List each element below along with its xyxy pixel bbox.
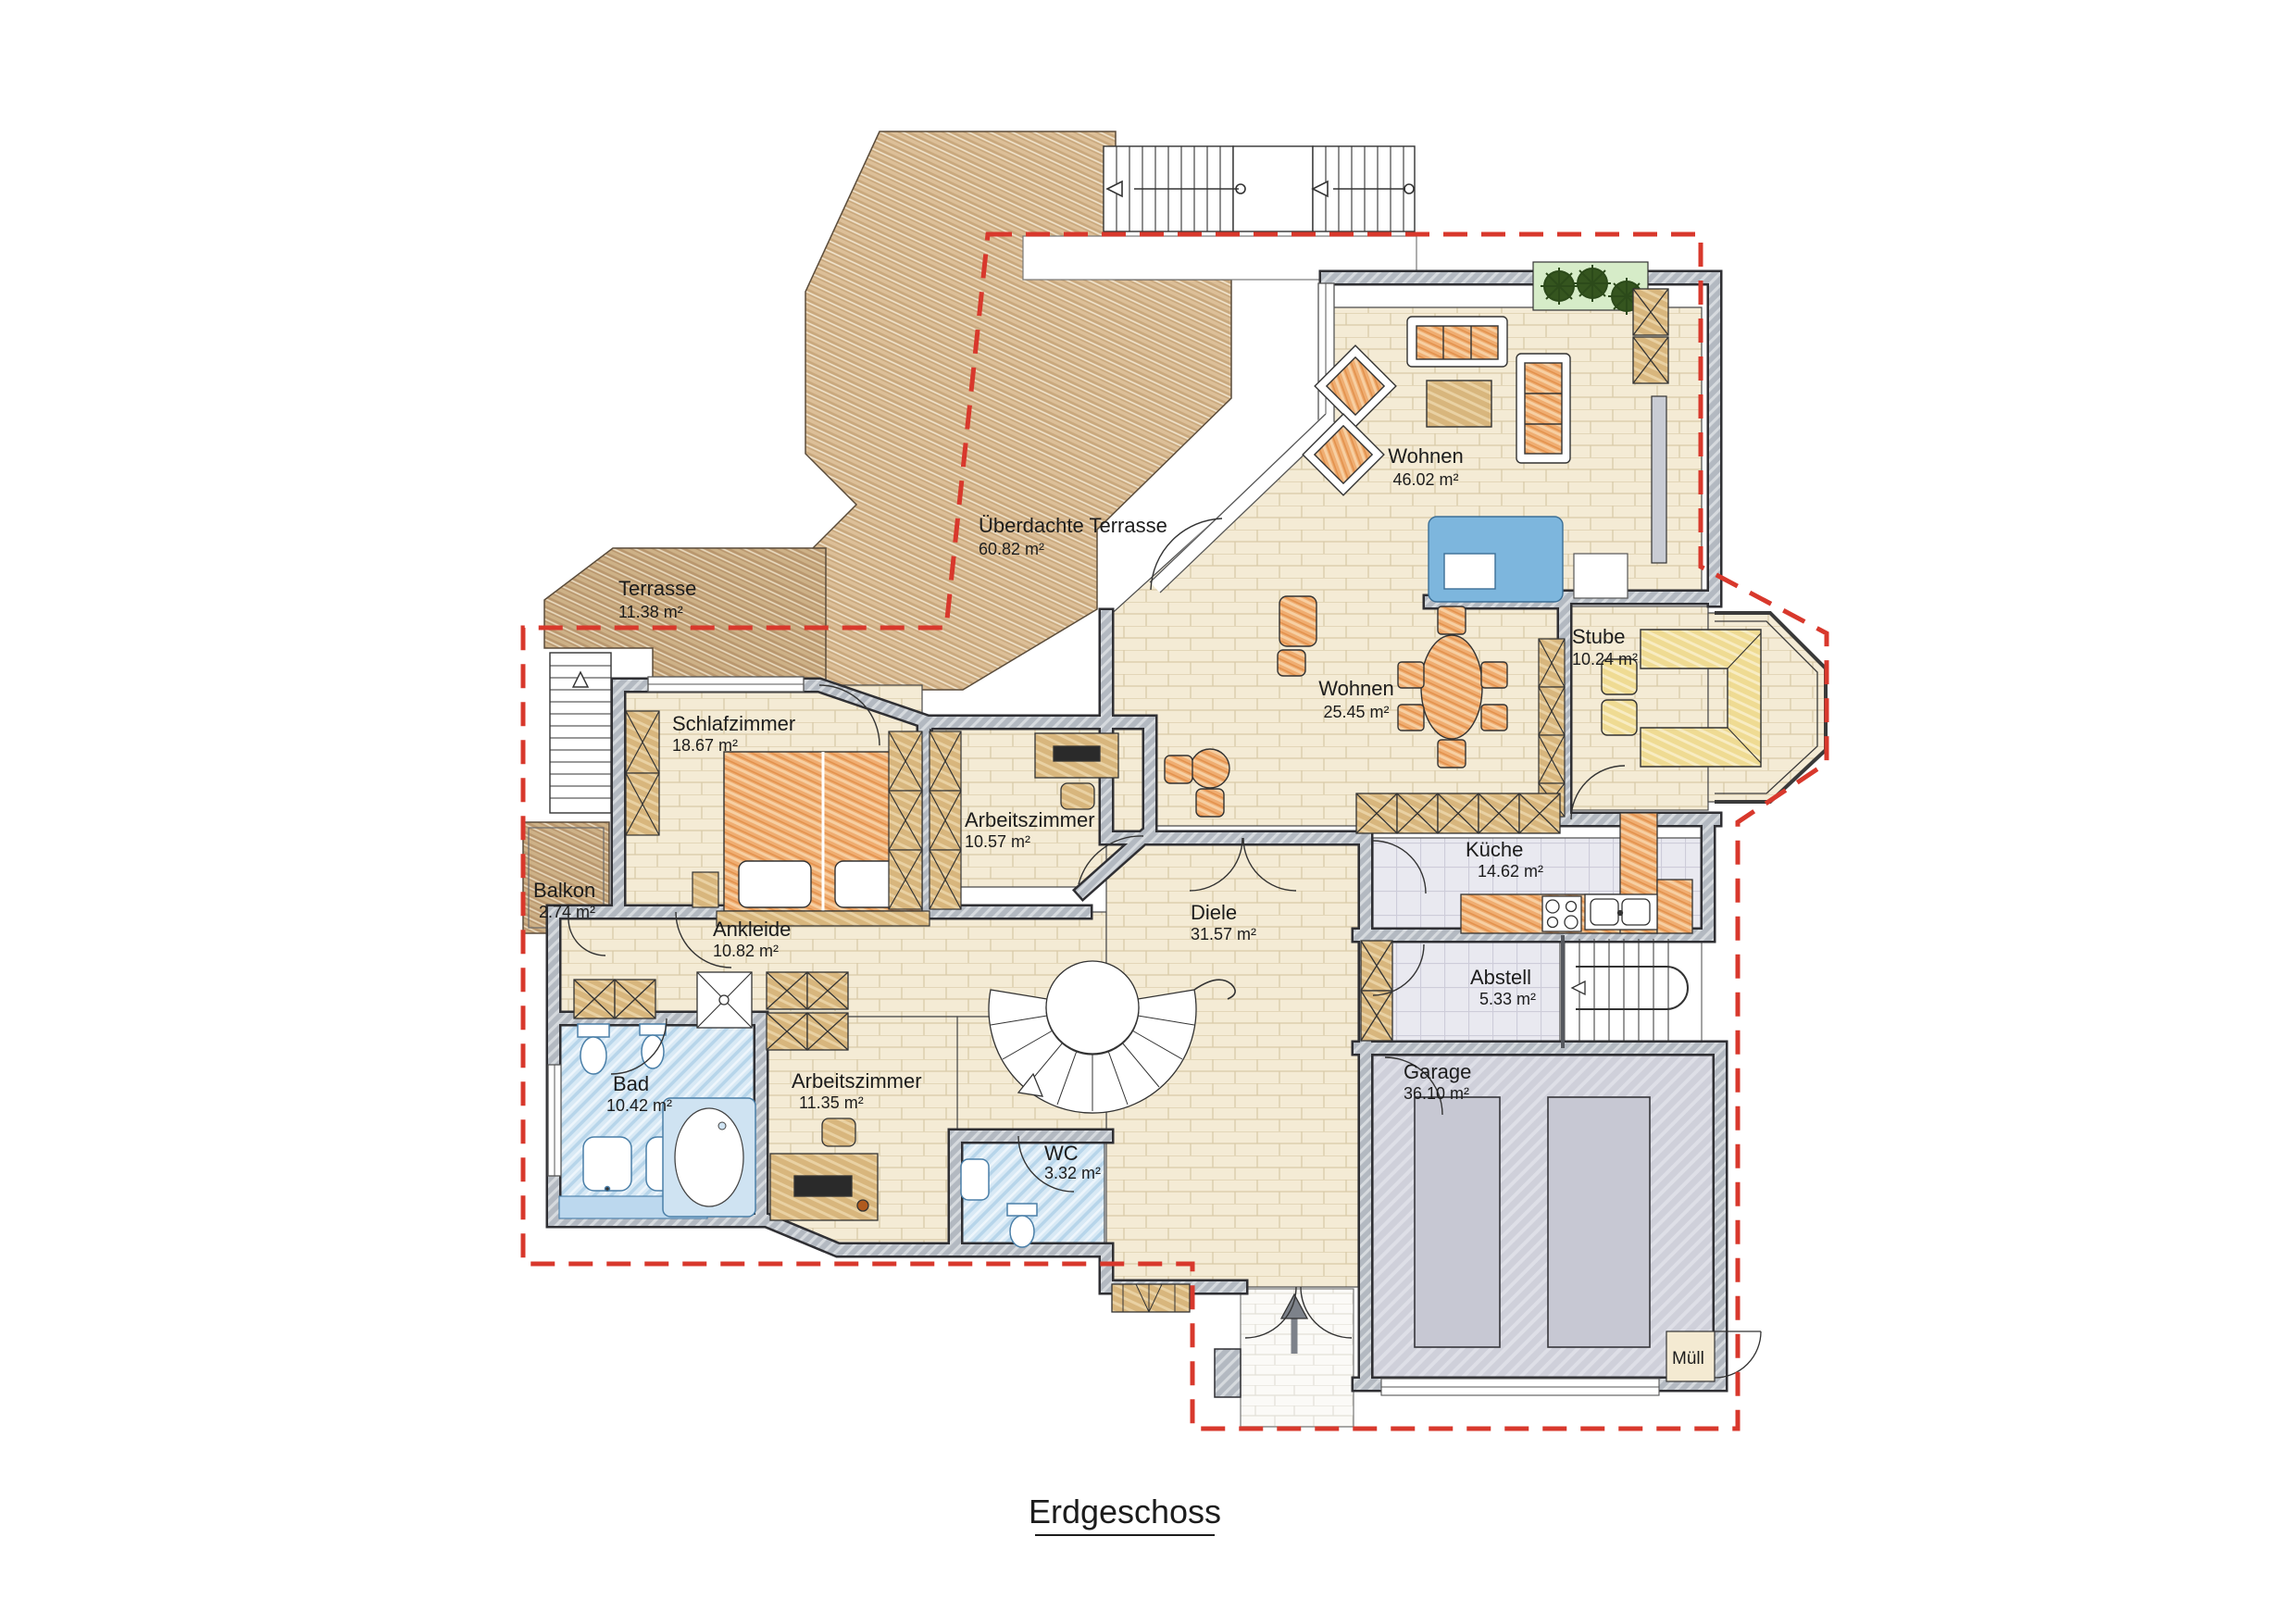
label-ankleide: Ankleide <box>713 918 791 941</box>
area-kueche: 14.62 m² <box>1478 862 1543 881</box>
window-bad-west <box>548 1065 561 1176</box>
label-diele: Diele <box>1191 901 1237 924</box>
bidet <box>640 1024 666 1068</box>
area-ankleide: 10.82 m² <box>713 942 779 960</box>
sink-1 <box>583 1137 631 1191</box>
double-sink <box>1585 894 1657 930</box>
exterior-stairs-left <box>550 653 611 813</box>
title-text: Erdgeschoss <box>1029 1493 1221 1530</box>
hall-stool-2 <box>1196 789 1224 817</box>
label-arbeitszimmer-sued: Arbeitszimmer <box>792 1069 922 1093</box>
label-wohnen-ess: Wohnen <box>1318 677 1394 700</box>
pillow-left <box>739 861 811 907</box>
shower <box>697 972 752 1028</box>
wardrobe-west <box>626 711 659 835</box>
area-wohnen-ess: 25.45 m² <box>1323 703 1389 721</box>
area-schlafzimmer: 18.67 m² <box>672 736 738 755</box>
sofa-two-seat <box>1516 354 1570 463</box>
wc-toilet <box>1010 1216 1034 1247</box>
stove-niche <box>1574 554 1628 598</box>
tiled-stove <box>1429 517 1563 602</box>
kitchen-top-cabinets <box>1356 793 1560 833</box>
bedside-table <box>693 872 718 907</box>
label-kueche: Küche <box>1466 838 1523 861</box>
label-wc: WC <box>1044 1142 1079 1165</box>
wc-sink <box>961 1159 989 1200</box>
coffee-table <box>1427 381 1491 427</box>
label-arbeitszimmer-ost: Arbeitszimmer <box>965 808 1095 831</box>
tv-board <box>1652 396 1666 563</box>
desk-chair-east <box>1061 783 1094 809</box>
label-schlafzimmer: Schlafzimmer <box>672 712 795 735</box>
label-garage: Garage <box>1404 1060 1471 1083</box>
window-schlafzimmer-north <box>648 677 804 692</box>
area-terrasse: 11.38 m² <box>618 603 683 621</box>
entrance-wall-stub <box>1215 1349 1241 1397</box>
toilet-bad <box>578 1024 609 1074</box>
plan-title: Erdgeschoss <box>1029 1493 1221 1535</box>
area-balkon: 2.74 m² <box>539 903 595 921</box>
dining-stube-cabinets <box>1539 639 1565 817</box>
ottoman-sw <box>1278 650 1305 676</box>
label-balkon: Balkon <box>533 879 595 902</box>
floor-plan-drawing: Überdachte Terrasse 60.82 m² Terrasse 11… <box>0 0 2296 1624</box>
abstell-cabinet <box>1361 941 1392 1041</box>
parking-space-2 <box>1548 1097 1650 1347</box>
dining-table <box>1421 635 1482 739</box>
hall-round-table <box>1191 749 1229 788</box>
label-terrasse: Terrasse <box>618 577 696 600</box>
desk-chair-south <box>822 1118 855 1146</box>
area-diele: 31.57 m² <box>1191 925 1256 943</box>
area-bad: 10.42 m² <box>606 1096 672 1115</box>
area-wc: 3.32 m² <box>1044 1164 1101 1182</box>
area-abstell: 5.33 m² <box>1479 990 1536 1008</box>
label-bad: Bad <box>613 1072 649 1095</box>
bathtub <box>663 1098 755 1217</box>
area-stube: 10.24 m² <box>1572 650 1638 668</box>
label-ueberdachte-terrasse: Überdachte Terrasse <box>979 514 1167 537</box>
area-ueberdachte-terrasse: 60.82 m² <box>979 540 1044 558</box>
exterior-stairs-top <box>1104 146 1415 231</box>
area-wohnen-gross: 46.02 m² <box>1392 470 1458 489</box>
armchair-sw <box>1279 596 1316 646</box>
hall-stool-1 <box>1165 756 1192 783</box>
label-stube: Stube <box>1572 625 1626 648</box>
label-abstell: Abstell <box>1470 966 1531 989</box>
counter-corner <box>1657 880 1692 933</box>
stube-chair-2 <box>1602 700 1637 735</box>
label-wohnen-gross: Wohnen <box>1388 444 1464 468</box>
area-arbeitszimmer-sued: 11.35 m² <box>799 1093 864 1112</box>
parking-space-1 <box>1415 1097 1500 1347</box>
label-muell: Müll <box>1672 1349 1704 1368</box>
area-arbeitszimmer-ost: 10.57 m² <box>965 832 1030 851</box>
area-garage: 36.10 m² <box>1404 1084 1469 1103</box>
cooktop <box>1542 896 1581 931</box>
floor-plan-page: Überdachte Terrasse 60.82 m² Terrasse 11… <box>0 0 2296 1624</box>
sofa-three-seat <box>1407 317 1507 367</box>
